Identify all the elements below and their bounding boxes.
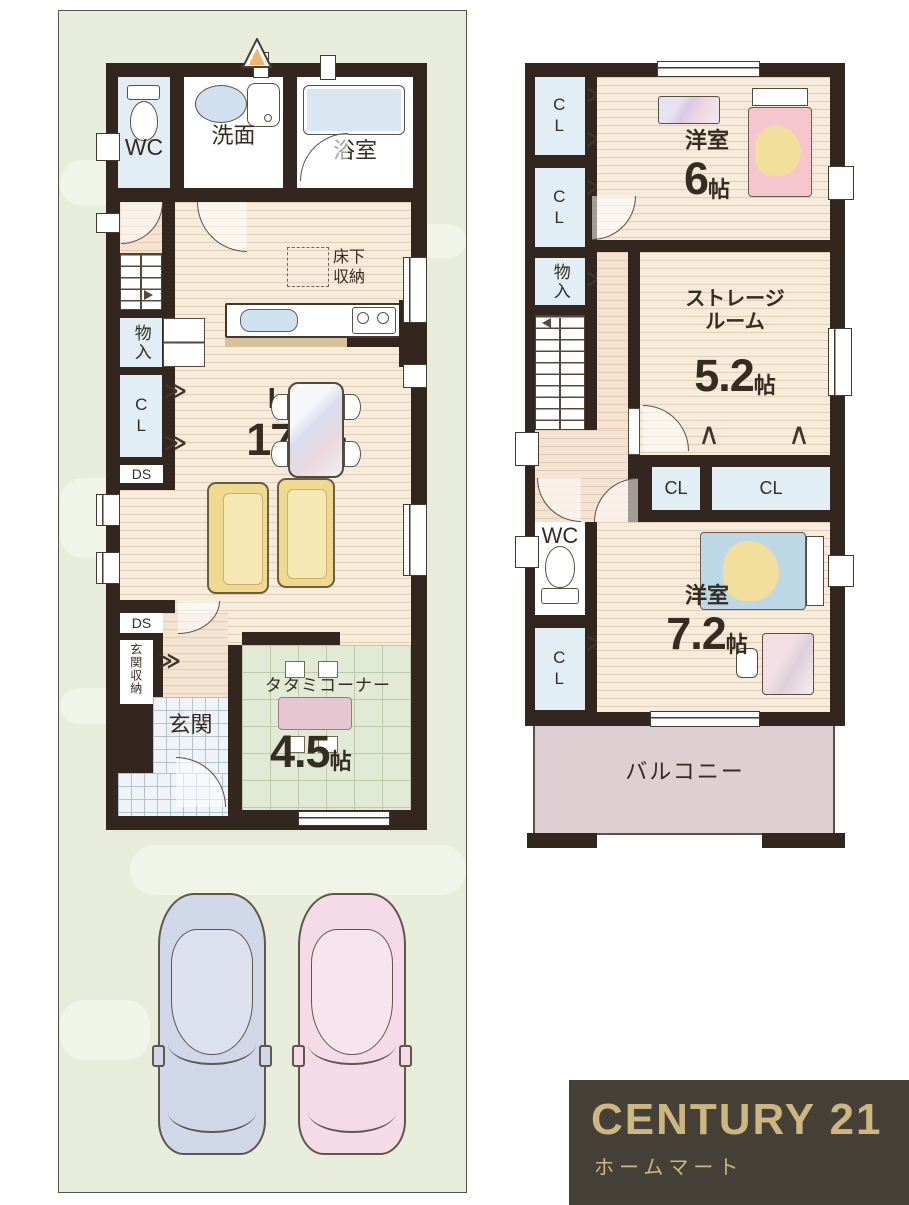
storage-size: 5.2 帖	[694, 350, 776, 402]
car-blue	[158, 893, 266, 1155]
north-marker-icon	[242, 38, 272, 68]
room-label-tatami: タタミコーナー	[248, 676, 408, 696]
car-mirror	[399, 1045, 412, 1067]
dresser-icon	[658, 96, 720, 124]
kitchen-toe-kick	[225, 338, 347, 347]
car-mirror	[292, 1045, 305, 1067]
window	[96, 494, 120, 526]
toilet-icon	[127, 85, 160, 100]
car-hood-line	[308, 1091, 396, 1133]
century21-logo: CENTURY 21 ホームマート	[569, 1080, 909, 1205]
window-sliding	[298, 811, 390, 826]
duct-space-lower: DS	[120, 613, 163, 633]
sink-icon	[195, 85, 247, 123]
window	[96, 133, 120, 161]
bed-headboard	[806, 536, 824, 606]
label-entrance-storage: 玄関収納	[128, 643, 142, 695]
double-door	[163, 318, 205, 367]
balcony-wall-stub	[527, 833, 597, 848]
folding-door-icon: ≫	[164, 380, 187, 402]
duct-space-upper: DS	[120, 465, 163, 483]
car-mirror	[152, 1045, 165, 1067]
logo-shop-text: ホームマート	[594, 1158, 743, 1178]
room-label-storage-line1: ストレージ	[685, 288, 785, 311]
stove-burner	[357, 312, 369, 324]
window	[403, 504, 427, 576]
label-underfloor-storage: 床下収納	[333, 248, 369, 292]
car-windshield	[308, 1023, 396, 1065]
sofa-icon	[277, 478, 335, 588]
room-label-wc-f2: WC	[533, 524, 587, 548]
window-sliding	[650, 711, 760, 727]
room-ldk-floor-west	[120, 490, 175, 600]
tatami-north-wall	[242, 632, 340, 645]
chair-icon	[271, 394, 288, 420]
closet-label-cl-lower-f2: CL	[545, 636, 573, 702]
wall-stub	[399, 340, 427, 367]
room-label-bedroom72: 洋室	[685, 583, 729, 608]
bathtub-icon	[303, 85, 405, 135]
closet-label-cl2-f2: CL	[545, 176, 573, 240]
stove-burner	[377, 312, 389, 324]
logo-brand-text: CENTURY 21	[591, 1098, 882, 1142]
balcony-wall-stub	[762, 833, 845, 848]
bedroom72-label-group: 洋室 7.2 帖	[632, 583, 782, 660]
door-leaf	[628, 408, 640, 455]
floorplan-page: WC 洗面 浴室 物入 CL ≫ ≫ DS 床下収納 LDK 17.2 帖	[0, 0, 909, 1205]
closet-cl-mid-left: CL	[652, 467, 700, 510]
background-streak	[130, 845, 466, 895]
window	[828, 555, 854, 587]
window	[828, 328, 852, 396]
bedroom6-label-group: 洋室 6 帖	[648, 128, 766, 205]
window	[403, 257, 427, 323]
kitchen-sink-icon	[240, 309, 298, 332]
toilet-icon	[541, 588, 579, 604]
room-label-entrance: 玄関	[153, 712, 228, 738]
toilet-icon	[545, 546, 575, 588]
closet-cl-mid-right: CL	[712, 467, 830, 510]
bedroom72-size: 7.2 帖	[666, 608, 748, 660]
bedroom6-size: 6 帖	[684, 153, 730, 205]
room-label-bedroom6: 洋室	[685, 128, 729, 153]
car-pink	[298, 893, 406, 1155]
sofa-icon	[207, 482, 269, 594]
stairs-arrow	[144, 290, 153, 300]
folding-door-icon: ≫	[164, 432, 187, 454]
vent	[320, 55, 336, 80]
tatami-size: 4.5 帖	[270, 726, 352, 778]
car-windshield	[168, 1023, 256, 1065]
chair-icon	[271, 441, 288, 467]
closet-label-monoiri-f2: 物入	[545, 260, 575, 304]
car-hood-line	[168, 1091, 256, 1133]
dining-table	[288, 382, 344, 478]
closet-label-monoiri-f1: 物入	[126, 320, 156, 366]
window	[515, 536, 539, 568]
window-sliding	[657, 61, 760, 77]
closet-label-cl-f1: CL	[128, 382, 154, 450]
room-label-storage-line2: ルーム	[705, 311, 764, 334]
chair-icon	[344, 394, 361, 420]
room-label-washroom: 洗面	[186, 123, 281, 149]
background-streak	[60, 1000, 150, 1060]
closet-label-cl1-f2: CL	[545, 84, 573, 148]
window	[403, 364, 427, 388]
bed-headboard	[752, 88, 808, 106]
folding-door-icon: ≫	[158, 650, 181, 672]
underfloor-storage-hatch	[287, 247, 329, 287]
room-label-balcony: バルコニー	[600, 758, 770, 786]
stairs-center-line	[140, 253, 142, 310]
washing-machine-icon	[247, 83, 280, 127]
window	[96, 213, 120, 233]
chair-icon	[344, 441, 361, 467]
washer-knob	[264, 114, 272, 122]
floor-cushion-icon	[285, 661, 305, 678]
car-mirror	[259, 1045, 272, 1067]
window	[515, 432, 539, 466]
folding-door-up-icon: ∧	[788, 420, 810, 450]
folding-door-up-icon: ∧	[698, 420, 720, 450]
storage-label-group: ストレージ ルーム 5.2 帖	[655, 288, 815, 402]
window	[828, 166, 854, 200]
room-label-wc-f1: WC	[116, 134, 172, 160]
window	[96, 552, 120, 584]
floor-cushion-icon	[318, 661, 338, 678]
stairs-arrow	[542, 318, 551, 328]
hall-f2-strip	[597, 252, 628, 430]
